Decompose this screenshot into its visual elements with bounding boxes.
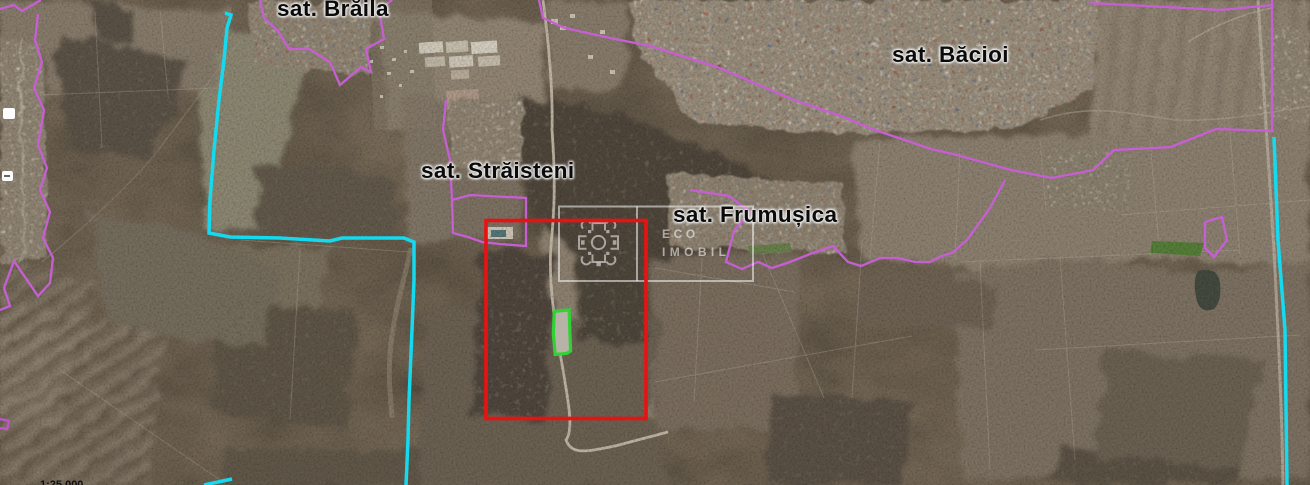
svg-text:ECO: ECO (662, 227, 699, 241)
svg-text:IMOBIL: IMOBIL (662, 245, 730, 259)
